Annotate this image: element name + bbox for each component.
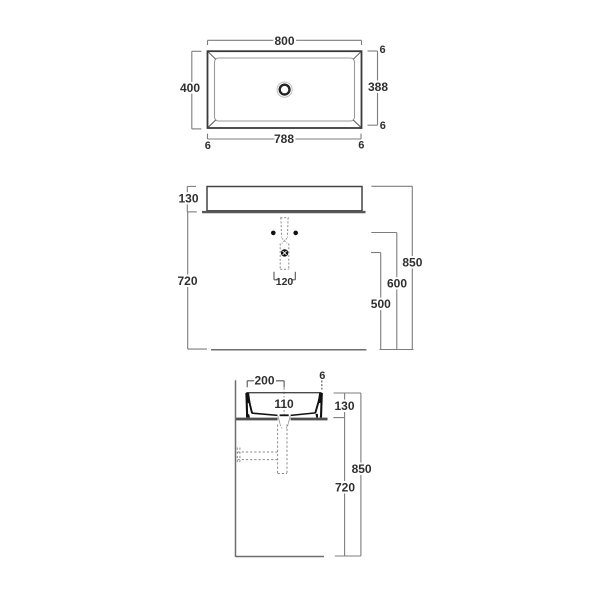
svg-text:130: 130 xyxy=(334,399,354,413)
svg-text:720: 720 xyxy=(335,480,355,494)
svg-text:6: 6 xyxy=(358,139,364,151)
svg-text:720: 720 xyxy=(177,274,197,288)
svg-text:200: 200 xyxy=(254,373,274,387)
svg-text:800: 800 xyxy=(274,34,294,48)
svg-text:130: 130 xyxy=(178,192,198,206)
svg-text:600: 600 xyxy=(387,276,407,290)
svg-text:788: 788 xyxy=(274,132,294,146)
svg-text:388: 388 xyxy=(368,80,388,94)
svg-text:110: 110 xyxy=(274,397,294,411)
svg-text:120: 120 xyxy=(276,276,294,288)
svg-text:6: 6 xyxy=(319,370,325,382)
svg-text:400: 400 xyxy=(180,81,200,95)
svg-text:850: 850 xyxy=(402,255,422,269)
svg-text:6: 6 xyxy=(380,44,386,56)
svg-text:850: 850 xyxy=(352,462,372,476)
svg-text:500: 500 xyxy=(371,297,391,311)
svg-text:6: 6 xyxy=(205,140,211,152)
svg-text:6: 6 xyxy=(380,120,386,132)
